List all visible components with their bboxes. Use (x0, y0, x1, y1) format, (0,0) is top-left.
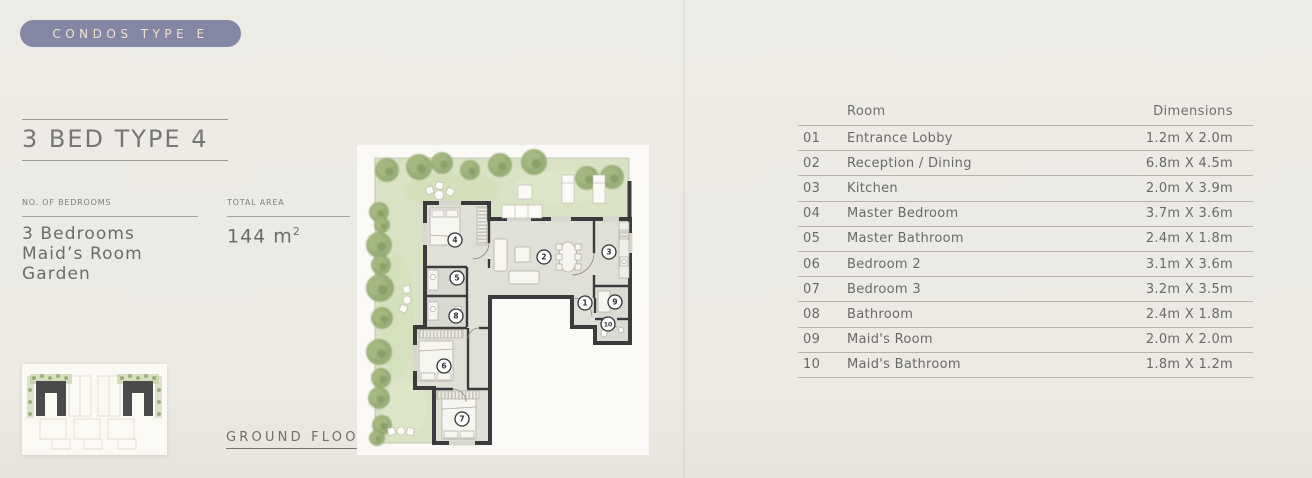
condos-type-badge: CONDOS TYPE E (20, 20, 241, 47)
row-dimensions: 2.0m X 3.9m (1103, 181, 1253, 196)
table-row: 05Master Bathroom2.4m X 1.8m (798, 227, 1253, 252)
room-marker-number: 5 (454, 274, 459, 283)
floor-plan-drawing: 12345678910 (357, 145, 649, 455)
table-row: 07Bedroom 33.2m X 3.5m (798, 277, 1253, 302)
table-row: 02Reception / Dining6.8m X 4.5m (798, 151, 1253, 176)
row-number: 07 (798, 282, 847, 297)
row-room-name: Kitchen (847, 181, 1103, 196)
brochure-page: CONDOS TYPE E 3 BED TYPE 4 NO. OF BEDROO… (0, 0, 1312, 478)
bedrooms-line-2: Maid’s Room (22, 245, 198, 265)
total-area-value: 144 m2 (227, 225, 350, 247)
floor-caption: GROUND FLOOR (226, 430, 371, 449)
total-area-spec: TOTAL AREA 144 m2 (227, 198, 350, 284)
table-row: 01Entrance Lobby1.2m X 2.0m (798, 126, 1253, 151)
row-dimensions: 3.2m X 3.5m (1103, 282, 1253, 297)
site-plan-drawing (22, 364, 167, 455)
room-marker: 8 (449, 309, 463, 323)
row-number: 01 (798, 131, 847, 146)
row-dimensions: 1.2m X 2.0m (1103, 131, 1253, 146)
row-room-name: Reception / Dining (847, 156, 1103, 171)
table-row: 10Maid's Bathroom1.8m X 1.2m (798, 353, 1253, 378)
row-dimensions: 6.8m X 4.5m (1103, 156, 1253, 171)
row-room-name: Bedroom 2 (847, 257, 1103, 272)
room-marker-number: 8 (453, 312, 458, 321)
room-marker-number: 1 (582, 299, 587, 308)
rooms-table: Room Dimensions 01Entrance Lobby1.2m X 2… (798, 104, 1253, 378)
room-marker: 2 (537, 250, 551, 264)
floor-plan: 12345678910 (357, 145, 649, 455)
bedrooms-label: NO. OF BEDROOMS (22, 198, 198, 217)
row-room-name: Bedroom 3 (847, 282, 1103, 297)
page-fold-divider (683, 0, 685, 478)
room-marker-number: 4 (452, 236, 457, 245)
table-row: 04Master Bedroom3.7m X 3.6m (798, 202, 1253, 227)
room-marker-number: 7 (459, 415, 464, 424)
row-number: 05 (798, 231, 847, 246)
room-marker-number: 6 (441, 362, 446, 371)
row-number: 10 (798, 357, 847, 372)
table-row: 08Bathroom2.4m X 1.8m (798, 302, 1253, 327)
row-number: 02 (798, 156, 847, 171)
room-marker: 5 (450, 271, 464, 285)
bedrooms-line-3: Garden (22, 265, 198, 285)
row-dimensions: 2.0m X 2.0m (1103, 332, 1253, 347)
row-room-name: Master Bedroom (847, 206, 1103, 221)
table-row: 09Maid's Room2.0m X 2.0m (798, 328, 1253, 353)
bedrooms-spec: NO. OF BEDROOMS 3 Bedrooms Maid’s Room G… (22, 198, 198, 284)
area-superscript: 2 (293, 225, 301, 238)
specs-section: NO. OF BEDROOMS 3 Bedrooms Maid’s Room G… (22, 198, 350, 284)
row-number: 04 (798, 206, 847, 221)
row-dimensions: 2.4m X 1.8m (1103, 307, 1253, 322)
row-number: 03 (798, 181, 847, 196)
room-marker: 3 (602, 245, 616, 259)
rooms-table-body: 01Entrance Lobby1.2m X 2.0m02Reception /… (798, 126, 1253, 378)
row-number: 09 (798, 332, 847, 347)
room-marker: 7 (455, 412, 469, 426)
row-dimensions: 2.4m X 1.8m (1103, 231, 1253, 246)
rooms-table-header: Room Dimensions (798, 104, 1253, 126)
room-marker-number: 3 (606, 248, 611, 257)
row-number: 06 (798, 257, 847, 272)
table-row: 06Bedroom 23.1m X 3.6m (798, 252, 1253, 277)
room-marker: 6 (437, 359, 451, 373)
row-room-name: Maid's Room (847, 332, 1103, 347)
room-marker-number: 9 (612, 298, 617, 307)
room-marker: 1 (578, 296, 592, 310)
dimensions-column-header: Dimensions (1103, 104, 1253, 119)
row-room-name: Entrance Lobby (847, 131, 1103, 146)
row-room-name: Master Bathroom (847, 231, 1103, 246)
row-dimensions: 3.7m X 3.6m (1103, 206, 1253, 221)
row-dimensions: 1.8m X 1.2m (1103, 357, 1253, 372)
total-area-label: TOTAL AREA (227, 198, 350, 217)
site-plan-thumbnail (22, 364, 167, 455)
bedrooms-line-1: 3 Bedrooms (22, 225, 198, 245)
bedrooms-value: 3 Bedrooms Maid’s Room Garden (22, 225, 198, 284)
row-room-name: Maid's Bathroom (847, 357, 1103, 372)
room-marker-number: 10 (604, 322, 613, 329)
condos-type-badge-label: CONDOS TYPE E (52, 27, 208, 41)
row-room-name: Bathroom (847, 307, 1103, 322)
room-marker-number: 2 (541, 253, 546, 262)
unit-title-block: 3 BED TYPE 4 (22, 119, 228, 161)
row-number: 08 (798, 307, 847, 322)
row-dimensions: 3.1m X 3.6m (1103, 257, 1253, 272)
room-marker: 4 (448, 233, 462, 247)
table-row: 03Kitchen2.0m X 3.9m (798, 176, 1253, 201)
page-title: 3 BED TYPE 4 (22, 127, 228, 151)
room-column-header: Room (847, 104, 1103, 119)
room-marker: 9 (608, 295, 622, 309)
room-marker: 10 (601, 317, 615, 331)
